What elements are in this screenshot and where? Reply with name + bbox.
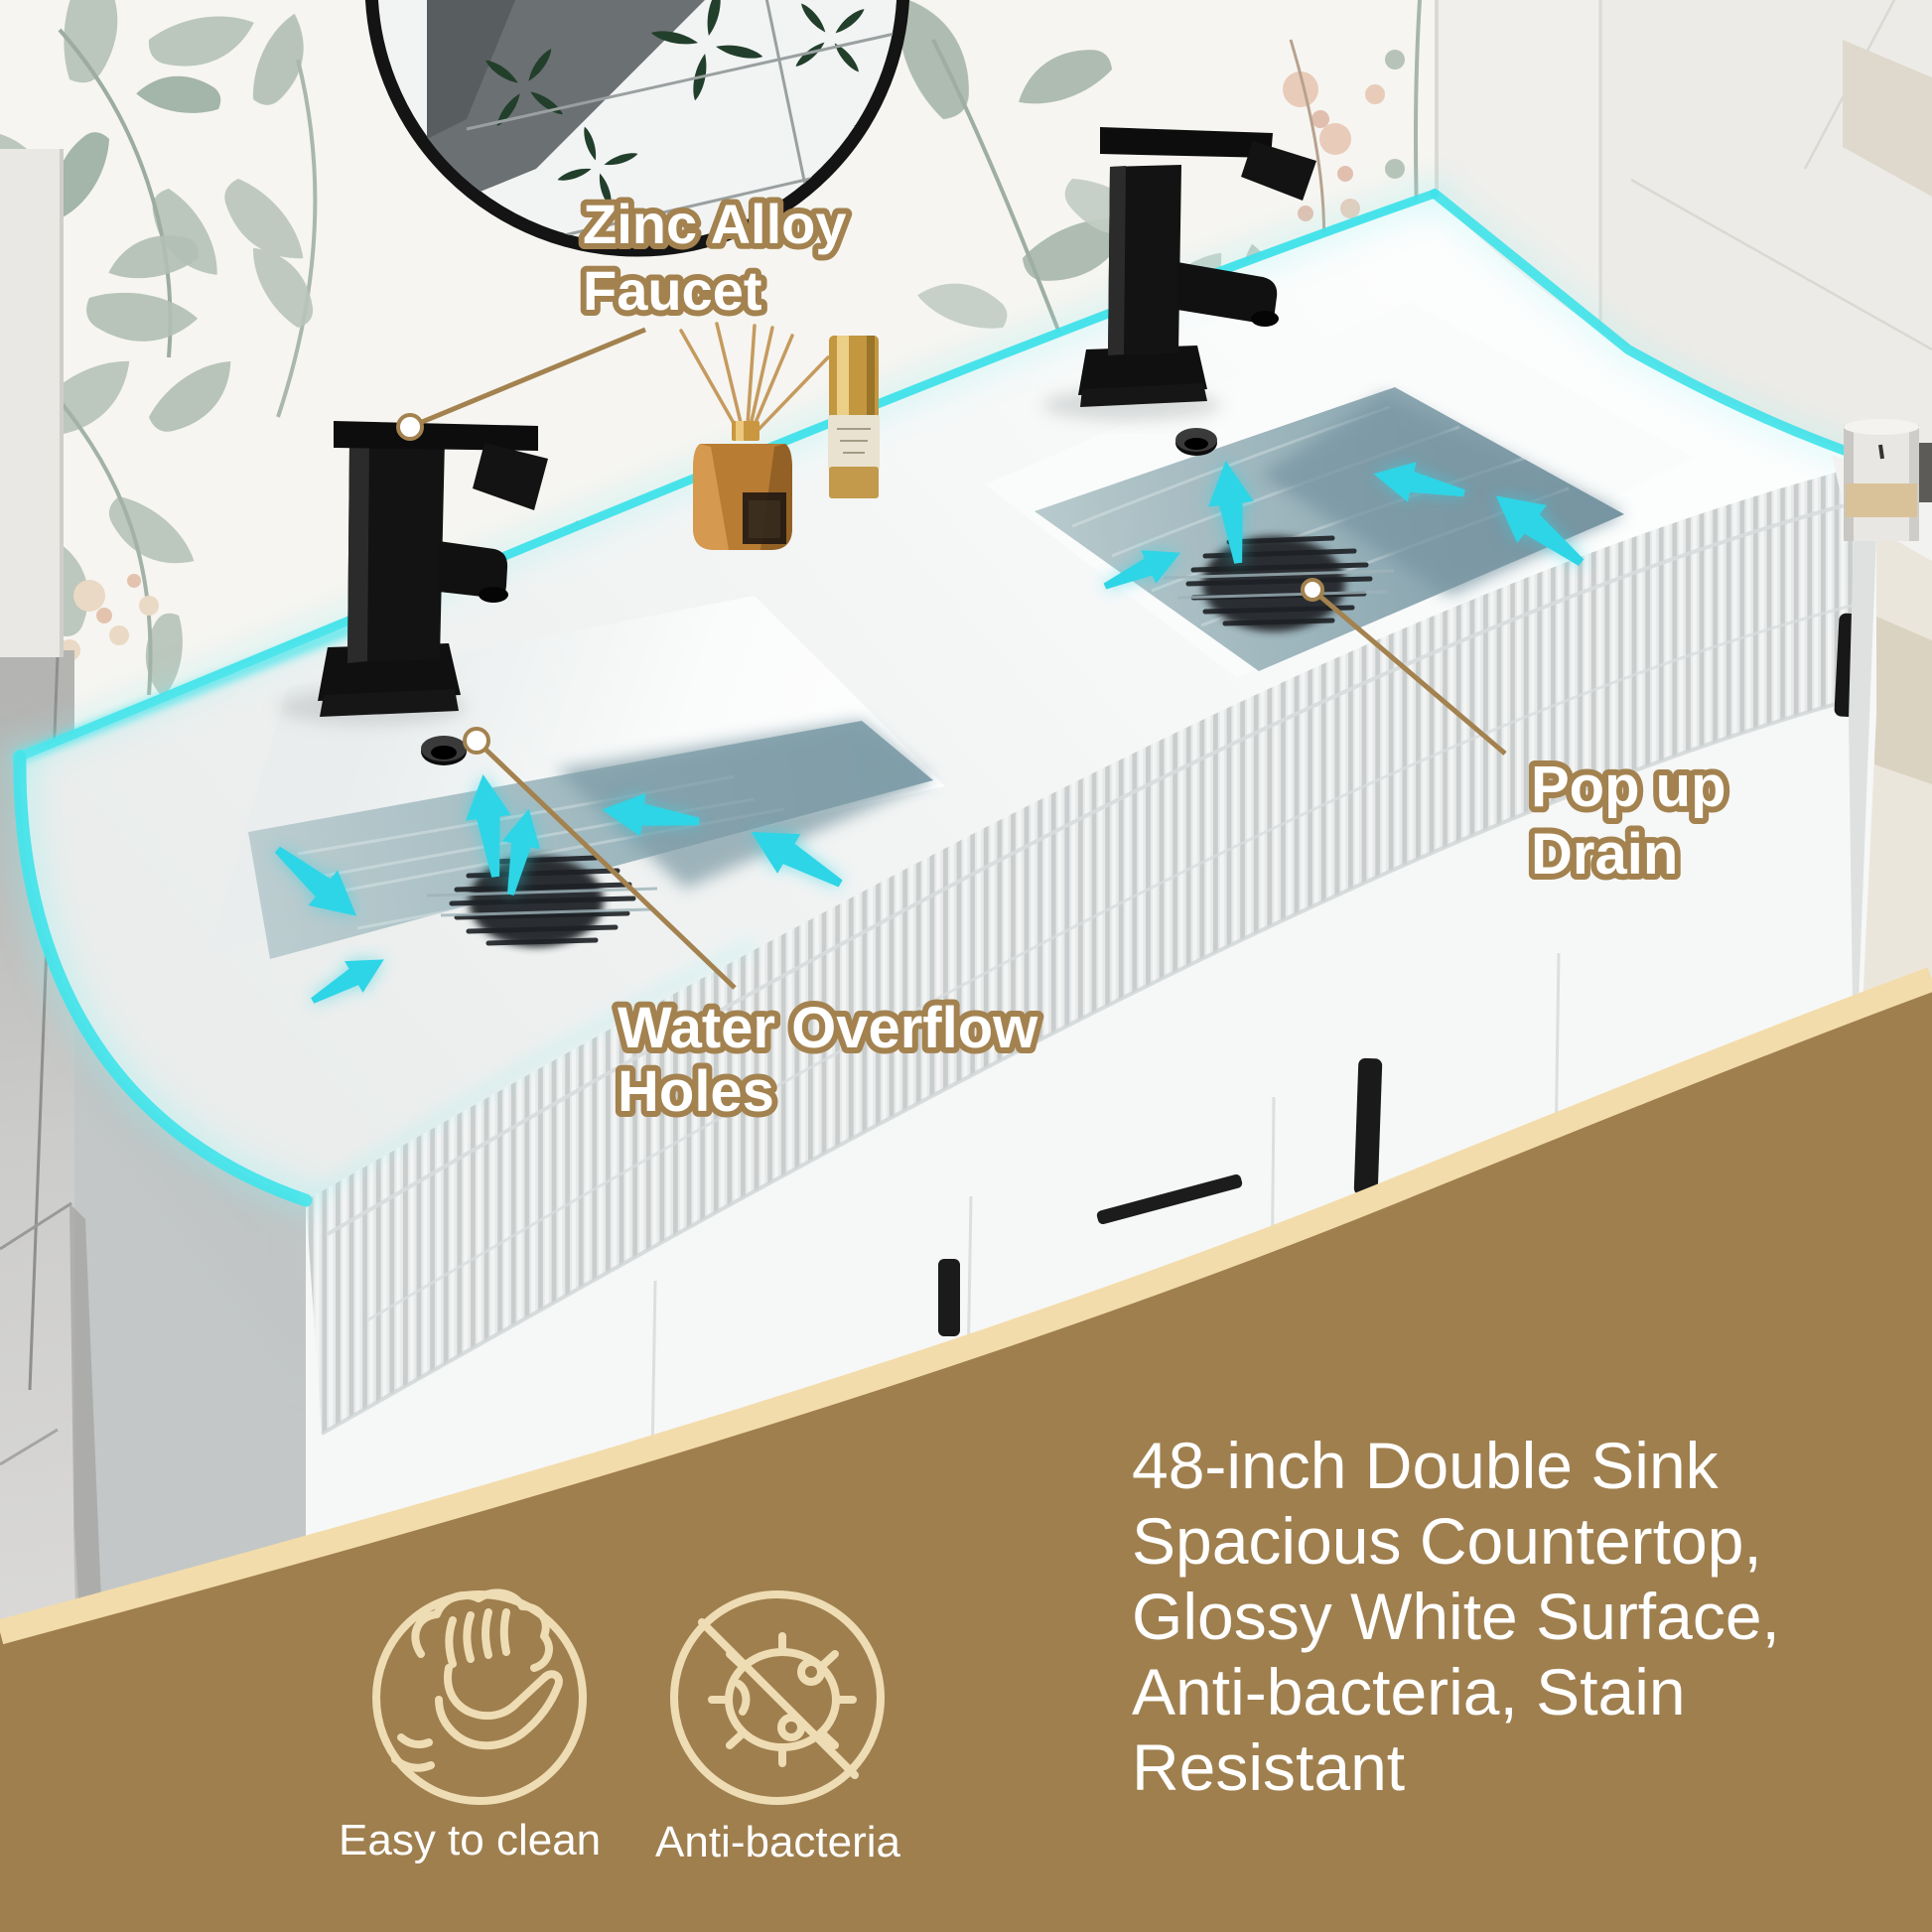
svg-text:Easy to clean: Easy to clean bbox=[339, 1816, 601, 1864]
svg-text:Faucet: Faucet bbox=[583, 259, 762, 322]
svg-text:Glossy White Surface,: Glossy White Surface, bbox=[1132, 1580, 1780, 1653]
svg-text:Water Overflow: Water Overflow bbox=[618, 996, 1038, 1060]
svg-text:48-inch Double Sink: 48-inch Double Sink bbox=[1132, 1429, 1720, 1502]
svg-text:Pop up: Pop up bbox=[1531, 755, 1726, 819]
svg-text:Holes: Holes bbox=[618, 1059, 774, 1124]
svg-text:Zinc Alloy: Zinc Alloy bbox=[583, 193, 847, 255]
svg-text:Anti-bacteria, Stain: Anti-bacteria, Stain bbox=[1132, 1655, 1686, 1728]
svg-text:Drain: Drain bbox=[1531, 822, 1678, 887]
svg-text:Resistant: Resistant bbox=[1132, 1730, 1405, 1804]
svg-text:Spacious Countertop,: Spacious Countertop, bbox=[1132, 1504, 1762, 1578]
svg-text:Anti-bacteria: Anti-bacteria bbox=[655, 1818, 901, 1866]
